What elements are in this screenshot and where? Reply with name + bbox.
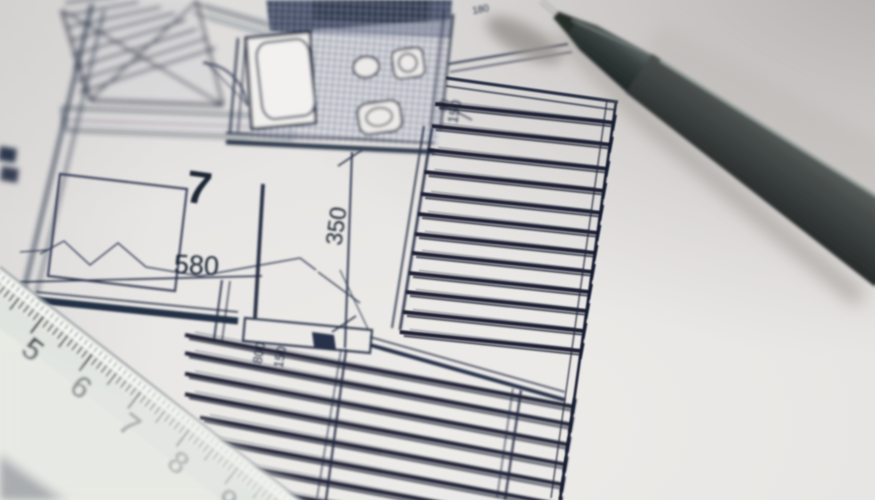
svg-text:350: 350 <box>320 205 351 247</box>
